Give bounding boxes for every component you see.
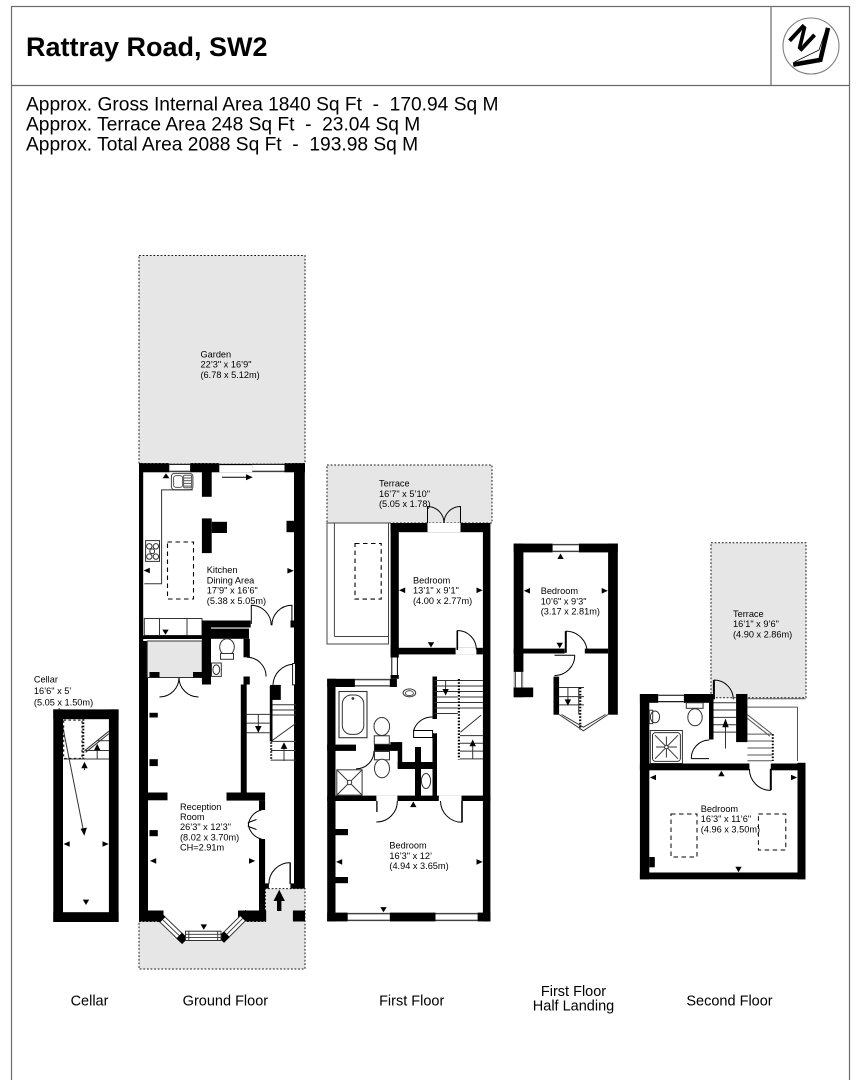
svg-text:(4.96 x 3.50m): (4.96 x 3.50m): [701, 824, 760, 834]
svg-text:Terrace: Terrace: [379, 479, 410, 489]
svg-text:Bedroom: Bedroom: [389, 841, 427, 851]
svg-text:16’1" x 9’6": 16’1" x 9’6": [733, 619, 779, 629]
svg-text:(3.17 x 2.81m): (3.17 x 2.81m): [541, 607, 600, 617]
svg-text:Bedroom: Bedroom: [541, 586, 579, 596]
svg-text:Half Landing: Half Landing: [533, 999, 614, 1015]
svg-text:17’9" x 16’6": 17’9" x 16’6": [207, 586, 258, 596]
svg-text:Cellar: Cellar: [34, 675, 58, 685]
svg-text:Terrace: Terrace: [733, 609, 764, 619]
svg-text:Kitchen: Kitchen: [207, 565, 238, 575]
svg-text:Room: Room: [180, 812, 205, 822]
svg-text:(4.00 x 2.77m): (4.00 x 2.77m): [413, 596, 472, 606]
svg-text:16’7" x 5’10": 16’7" x 5’10": [379, 489, 430, 499]
svg-text:Approx. Gross Internal Area 18: Approx. Gross Internal Area 1840 Sq Ft -…: [26, 95, 498, 116]
svg-text:(4.90 x 2.86m): (4.90 x 2.86m): [733, 629, 792, 639]
svg-text:10’6" x 9’3": 10’6" x 9’3": [541, 596, 587, 606]
svg-text:Garden: Garden: [201, 349, 232, 359]
svg-text:Second Floor: Second Floor: [686, 994, 772, 1010]
svg-text:16’3" x 11’6": 16’3" x 11’6": [701, 814, 751, 824]
svg-text:13’1" x 9’1": 13’1" x 9’1": [413, 586, 459, 596]
svg-text:(4.94 x 3.65m): (4.94 x 3.65m): [389, 861, 448, 871]
svg-text:(5.05 x 1.78): (5.05 x 1.78): [379, 499, 431, 509]
svg-text:(8.02 x 3.70m): (8.02 x 3.70m): [180, 832, 239, 842]
svg-text:Approx. Terrace Area 248 Sq Ft: Approx. Terrace Area 248 Sq Ft - 23.04 S…: [26, 115, 420, 136]
svg-text:16’6" x 5’: 16’6" x 5’: [34, 686, 71, 696]
svg-text:26’3" x 12’3": 26’3" x 12’3": [180, 822, 231, 832]
svg-text:(6.78 x 5.12m): (6.78 x 5.12m): [201, 370, 260, 380]
svg-text:(5.05 x 1.50m): (5.05 x 1.50m): [34, 698, 93, 708]
svg-text:Rattray Road, SW2: Rattray Road, SW2: [26, 32, 268, 62]
svg-text:Bedroom: Bedroom: [701, 804, 739, 814]
svg-text:22’3" x 16’9": 22’3" x 16’9": [201, 360, 252, 370]
svg-text:Bedroom: Bedroom: [413, 576, 451, 586]
svg-text:CH=2.91m: CH=2.91m: [180, 842, 225, 852]
svg-text:Dining Area: Dining Area: [207, 575, 255, 585]
svg-text:(5.38 x 5.05m): (5.38 x 5.05m): [207, 596, 266, 606]
svg-text:Approx. Total Area 2088 Sq Ft: Approx. Total Area 2088 Sq Ft - 193.98 S…: [26, 135, 418, 156]
svg-text:Reception: Reception: [180, 802, 221, 812]
svg-text:Cellar: Cellar: [71, 994, 109, 1010]
svg-text:First Floor: First Floor: [379, 994, 444, 1010]
svg-text:Ground Floor: Ground Floor: [183, 994, 269, 1010]
svg-text:16’3" x 12’: 16’3" x 12’: [389, 851, 432, 861]
